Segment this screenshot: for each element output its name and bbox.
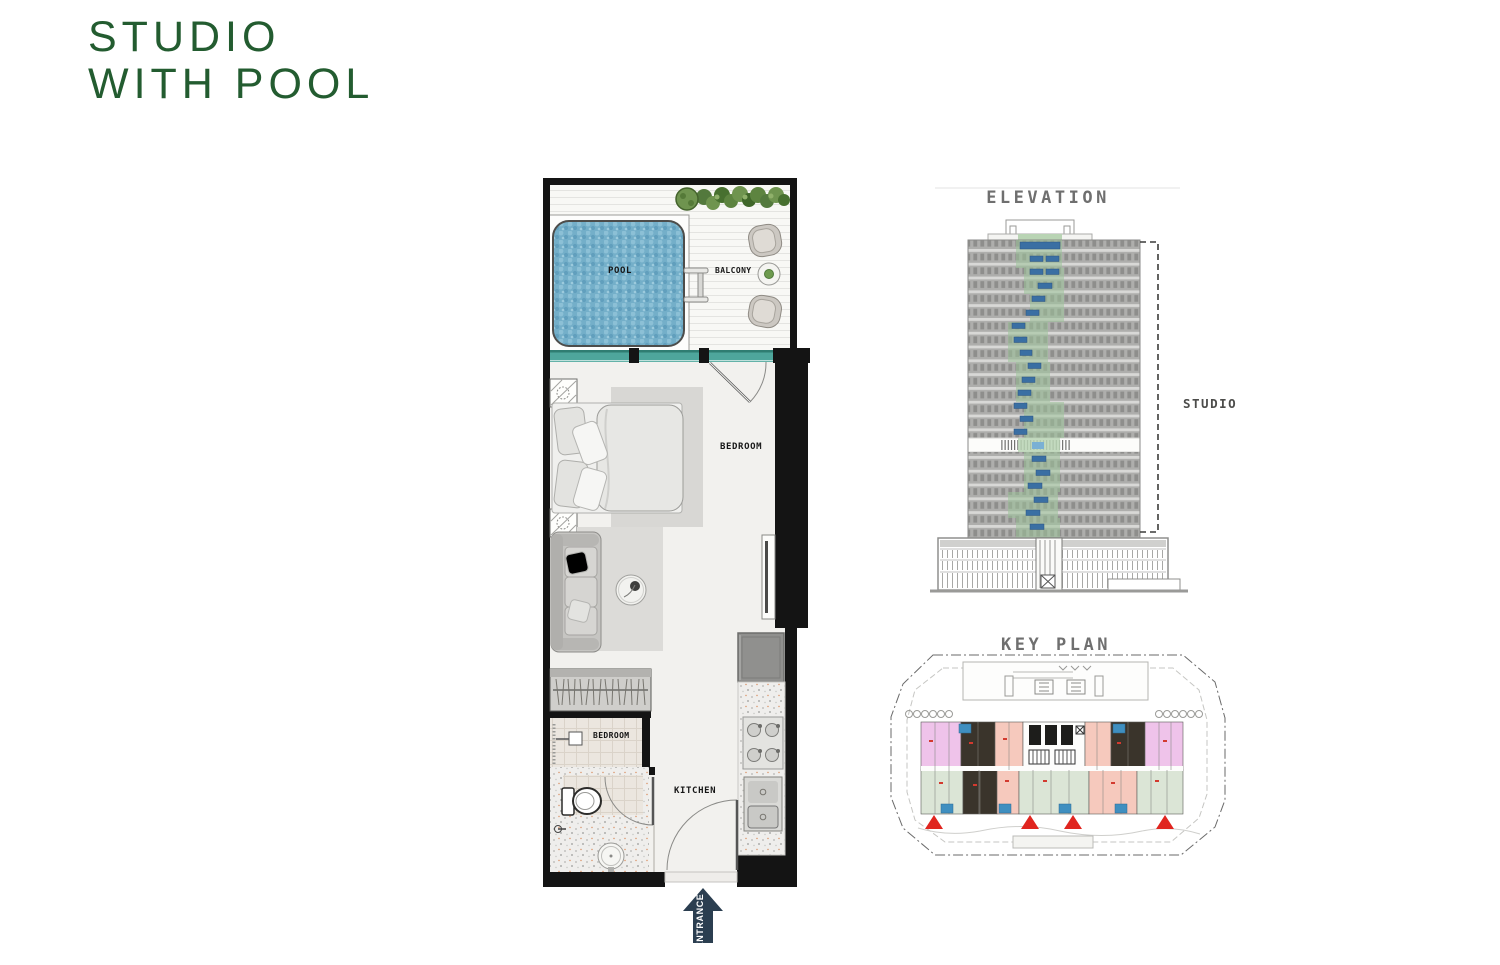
page-title-line1: STUDIO bbox=[88, 14, 374, 61]
entrance-label: ENTRANCE bbox=[695, 894, 705, 949]
balcony-table bbox=[758, 263, 780, 285]
elevation-title: ELEVATION bbox=[986, 188, 1110, 208]
page-title-line2: WITH POOL bbox=[88, 61, 374, 108]
window-band bbox=[550, 348, 773, 363]
key-plan-diagram: KEY PLAN bbox=[863, 622, 1243, 872]
corridor bbox=[921, 766, 1183, 771]
bedroom-label: BEDROOM bbox=[720, 442, 762, 452]
tower-roof bbox=[988, 220, 1092, 240]
balcony-label: BALCONY bbox=[715, 266, 752, 275]
podium bbox=[930, 538, 1188, 591]
bathroom-label: BEDROOM bbox=[593, 731, 630, 740]
sink-icon bbox=[744, 777, 782, 831]
pool-label: POOL bbox=[608, 266, 632, 276]
floor-plan: POOL BALCONY bbox=[541, 177, 811, 965]
entry-plaza bbox=[1013, 836, 1093, 848]
fridge bbox=[738, 633, 784, 682]
studio-callout-bracket bbox=[1140, 242, 1158, 532]
key-plan-title: KEY PLAN bbox=[1001, 635, 1111, 655]
elevation-diagram: ELEVATION bbox=[930, 180, 1240, 620]
elevation-studio-label: STUDIO bbox=[1183, 396, 1237, 411]
pool bbox=[548, 215, 708, 351]
location-markers bbox=[925, 815, 1174, 829]
page-title: STUDIO WITH POOL bbox=[88, 14, 374, 108]
bed bbox=[552, 387, 703, 527]
kitchen bbox=[738, 682, 785, 855]
stove-icon bbox=[743, 717, 783, 769]
tv-unit bbox=[762, 535, 775, 619]
wardrobe bbox=[550, 669, 651, 711]
amenity-block bbox=[963, 662, 1148, 700]
colonnade-dots bbox=[906, 711, 1203, 718]
entrance-arrow-icon: ENTRANCE bbox=[683, 888, 723, 948]
bathroom bbox=[550, 718, 654, 872]
coffee-table bbox=[616, 575, 646, 605]
plant-icon bbox=[765, 270, 774, 279]
tree-icon bbox=[676, 188, 698, 210]
toilet-icon bbox=[562, 788, 601, 815]
brochure-page: STUDIO WITH POOL bbox=[0, 0, 1500, 965]
floor-plate-bottom-row bbox=[921, 770, 1183, 814]
kitchen-label: KITCHEN bbox=[674, 786, 716, 796]
